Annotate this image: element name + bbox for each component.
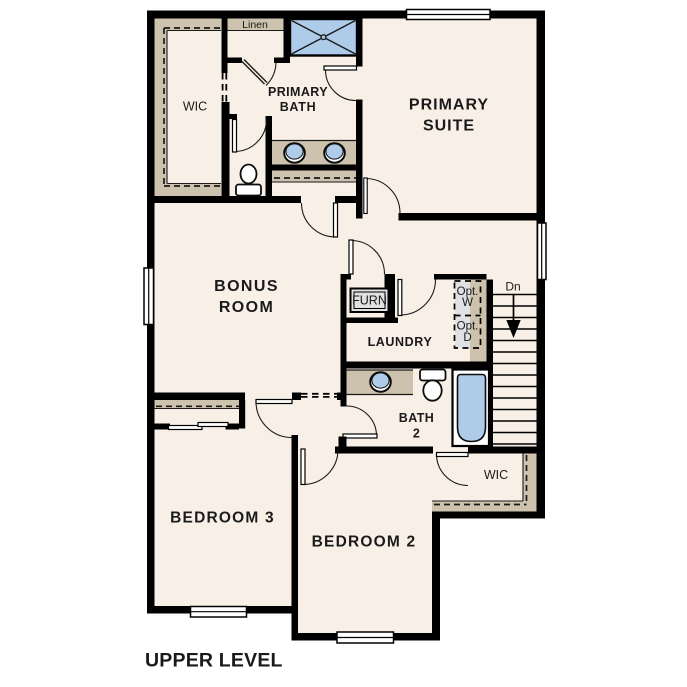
svg-text:SUITE: SUITE [423,118,475,135]
svg-text:BATH: BATH [399,411,434,425]
svg-text:Opt.: Opt. [457,321,479,333]
svg-text:PRIMARY: PRIMARY [409,97,489,114]
svg-text:WIC: WIC [183,100,207,114]
svg-text:W: W [462,297,473,309]
svg-text:BONUS: BONUS [214,278,279,295]
svg-text:BEDROOM 2: BEDROOM 2 [312,534,417,551]
svg-text:LAUNDRY: LAUNDRY [368,335,433,349]
svg-text:UPPER LEVEL: UPPER LEVEL [145,650,283,672]
svg-text:FURN: FURN [352,294,387,308]
svg-text:BATH: BATH [280,100,317,114]
svg-text:WIC: WIC [484,468,508,482]
svg-text:PRIMARY: PRIMARY [268,85,328,99]
svg-text:D: D [463,332,471,344]
svg-text:2: 2 [413,427,420,441]
svg-text:Dn: Dn [505,280,520,294]
svg-text:BEDROOM 3: BEDROOM 3 [170,510,275,527]
svg-text:ROOM: ROOM [219,299,274,316]
svg-text:Linen: Linen [242,19,268,31]
